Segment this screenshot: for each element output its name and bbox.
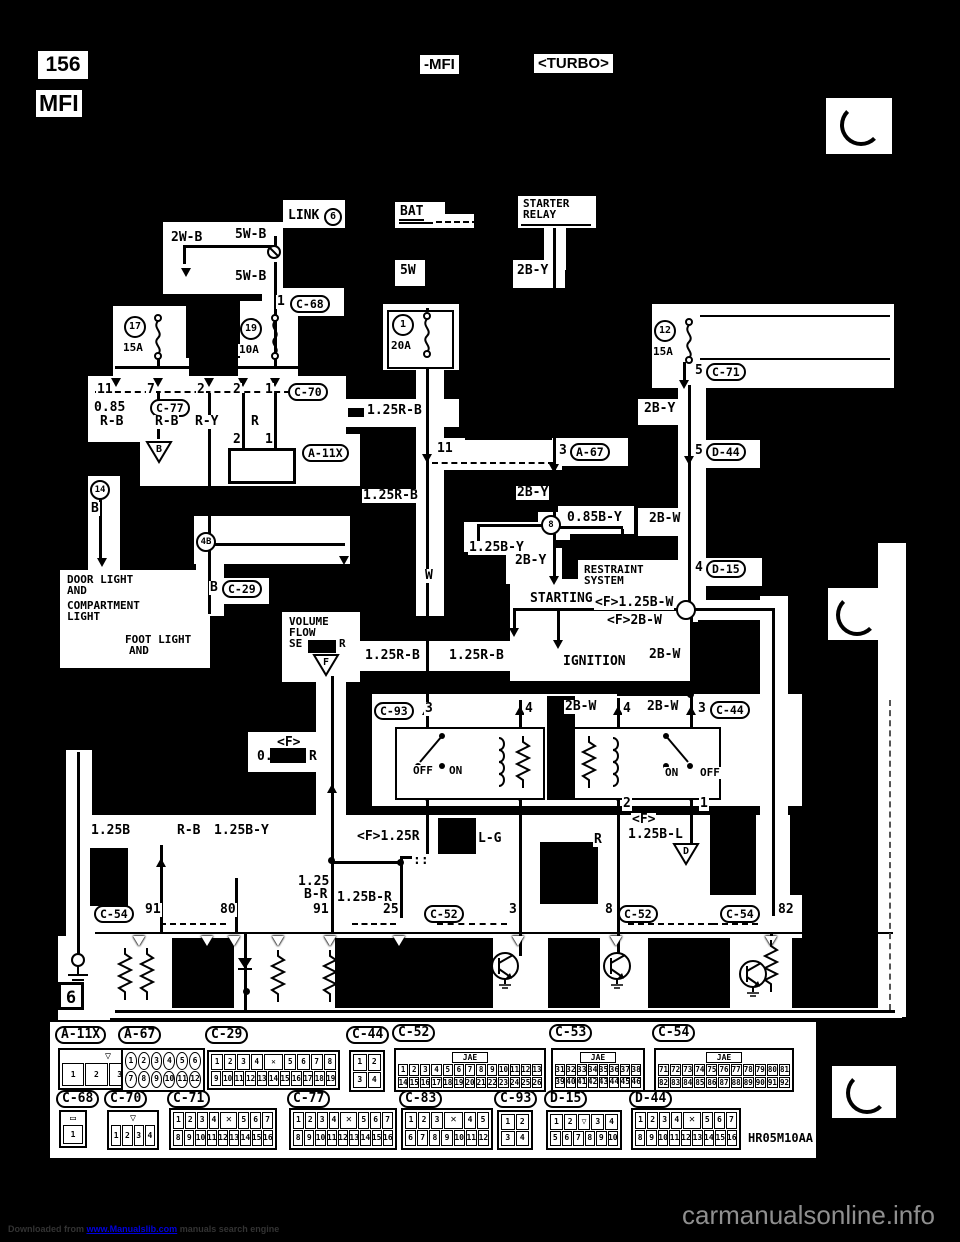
dashed-edge-line — [889, 700, 891, 1010]
connector-block-C-44: 1234 — [349, 1050, 385, 1092]
wire-label: BAT — [399, 205, 424, 221]
wire-label: 1.25R-B — [448, 649, 505, 663]
wire — [115, 1010, 895, 1013]
connector-pin: 11 — [510, 1064, 520, 1076]
connector-pin: 8 — [635, 1130, 645, 1147]
connector-pin: 14 — [268, 1071, 278, 1087]
junction-dot — [397, 859, 404, 866]
grid-reference-marker: 6 — [58, 982, 84, 1010]
connector-pin: 16 — [420, 1077, 430, 1089]
hole-punch-icon — [846, 1072, 888, 1114]
connector-label-C-83: C-83 — [399, 1090, 442, 1108]
connector-pin: 11 — [207, 1130, 217, 1147]
footer-prefix: Downloaded from — [8, 1224, 87, 1234]
connector-block-C-77: 1234✕5678910111213141516 — [289, 1108, 397, 1150]
redaction-block — [540, 842, 598, 904]
circled-number: 6 — [324, 208, 342, 226]
fuse-number: 17 — [124, 316, 146, 338]
wire-label: 5 — [694, 364, 704, 378]
wire — [513, 611, 516, 629]
connector-pin: 75 — [706, 1064, 717, 1076]
wire-label: ON — [448, 765, 463, 777]
connector-pin-row: 123456 — [125, 1052, 201, 1070]
resistor-icon — [323, 950, 337, 1002]
connector-ref: C-44 — [710, 701, 750, 719]
connector-label-C-77: C-77 — [287, 1090, 330, 1108]
connector-pin: 13 — [692, 1130, 702, 1147]
connector-pin: 21 — [476, 1077, 486, 1089]
connector-pin: 3 — [197, 1112, 208, 1129]
connector-pin: 8 — [585, 1131, 596, 1147]
wire-label: 7 — [146, 383, 156, 397]
ecu-pin-arrow-icon — [324, 936, 336, 946]
ecu-pin-arrow-icon — [512, 936, 524, 946]
connector-pin-row: 12 — [353, 1054, 381, 1071]
page-title: MFI — [36, 90, 82, 120]
wire-label: 1.25R-B — [362, 489, 419, 503]
connector-pin: 11 — [176, 1071, 188, 1089]
wire — [426, 798, 429, 858]
wire-label: 11 — [96, 383, 114, 397]
wire-label: 2B-W — [646, 700, 679, 714]
resistor-icon — [516, 736, 530, 788]
connector-ref: C-70 — [288, 383, 328, 401]
connector-label-C-70: C-70 — [104, 1090, 147, 1108]
connector-pin: 78 — [743, 1064, 754, 1076]
connector-pin-row: 5678910 — [550, 1131, 618, 1147]
connector-pin: 3 — [431, 1112, 443, 1129]
dashed-wire — [437, 923, 507, 925]
hole-punch-icon — [836, 594, 878, 636]
connector-pin: 5 — [702, 1112, 713, 1129]
connector-pin-row: 12▽34 — [550, 1114, 618, 1130]
connector-pin: 35 — [599, 1064, 609, 1076]
connector-pin: 22 — [487, 1077, 497, 1089]
footer-link[interactable]: www.Manualslib.com — [87, 1224, 178, 1234]
svg-text:F: F — [323, 657, 329, 668]
connector-pin: 10 — [498, 1064, 508, 1076]
connector-pin: 2 — [185, 1112, 196, 1129]
connector-ref: C-52 — [424, 905, 464, 923]
connector-pin: 86 — [706, 1077, 717, 1089]
ground-symbol-F: F — [312, 653, 340, 677]
connector-block-C-54: JAE7172737475767778798081828384858687888… — [654, 1048, 794, 1092]
wire-label: IGNITION — [562, 655, 627, 669]
connector-pin: 87 — [718, 1077, 729, 1089]
connector-ref: C-93 — [374, 702, 414, 720]
connector-pin: 12 — [478, 1130, 489, 1147]
connector-keyway-icon: ▽ — [105, 1052, 111, 1062]
wire-label: R — [308, 750, 318, 764]
transistor-icon — [599, 950, 635, 990]
wire-label: <F> — [631, 813, 656, 827]
resistor-icon — [140, 948, 154, 1000]
connector-key-cell: ✕ — [444, 1112, 463, 1129]
connector-pin: 34 — [588, 1064, 598, 1076]
junction-circle: 14 — [90, 480, 110, 500]
connector-pin: 12 — [218, 1130, 228, 1147]
ground-symbol-B: B — [145, 440, 173, 464]
arrowhead-down-icon — [617, 551, 627, 560]
wire — [617, 693, 693, 696]
connector-pin: 4 — [163, 1052, 175, 1070]
connector-pin: 8 — [293, 1130, 303, 1147]
wire-label: R-B — [99, 415, 124, 429]
connector-pin: 4 — [209, 1112, 220, 1129]
wire — [553, 228, 556, 290]
connector-label-A-67: A-67 — [118, 1026, 161, 1044]
wire-label: AND — [66, 585, 88, 597]
wire-label: W — [424, 569, 434, 583]
connector-pin-row: 910111213141516171819 — [211, 1071, 336, 1087]
fuse-number: 1 — [392, 314, 414, 336]
connector-pin: 5 — [477, 1112, 489, 1129]
wire-label: 2W-B — [170, 231, 203, 245]
connector-pin: 6 — [297, 1054, 309, 1070]
wire — [334, 861, 398, 864]
connector-pin: 5 — [284, 1054, 296, 1070]
connector-pin: 1 — [501, 1114, 515, 1130]
wire-label: 0.85 — [93, 401, 126, 415]
wire-label: LINK — [287, 209, 320, 223]
wire-label: 2 — [622, 797, 632, 811]
connector-pin: 10 — [454, 1130, 465, 1147]
wire-label: 2B-W — [648, 648, 681, 662]
wire-label: <F>1.25B-W — [594, 596, 674, 610]
connector-label-C-52: C-52 — [392, 1024, 435, 1042]
wire — [183, 248, 186, 264]
wire — [621, 529, 624, 553]
connector-pin: 4 — [431, 1064, 441, 1076]
connector-pin: 1 — [635, 1112, 646, 1129]
fuse-amps: 20A — [390, 340, 412, 352]
header-variant-label: <TURBO> — [534, 54, 613, 73]
connector-pin: 3 — [353, 1072, 367, 1089]
connector-pin: 14 — [398, 1077, 408, 1089]
wire-label: SYSTEM — [583, 575, 625, 587]
connector-pin: 4 — [145, 1125, 155, 1146]
connector-pin: 1 — [550, 1114, 563, 1130]
wire-label: 5 — [694, 444, 704, 458]
wire-label: 1.25R-B — [366, 404, 423, 418]
wire-label: 5W — [399, 264, 417, 278]
component-box-a11x — [228, 448, 296, 484]
connector-pin: 4 — [671, 1112, 682, 1129]
wire — [77, 752, 80, 958]
connector-pin: 37 — [620, 1064, 630, 1076]
connector-pin: 81 — [779, 1064, 790, 1076]
connector-pin: 43 — [599, 1077, 609, 1089]
wire-label: 3 — [558, 444, 568, 458]
connector-keyway-icon: ▽ — [130, 1114, 136, 1124]
wire-label: 1 — [264, 383, 274, 397]
arrowhead-down-icon — [553, 640, 563, 649]
connector-pin: 44 — [609, 1077, 619, 1089]
redaction-block — [186, 296, 240, 358]
arrowhead-down-icon — [549, 576, 559, 585]
connector-ref: C-54 — [720, 905, 760, 923]
connector-label-C-68: C-68 — [56, 1090, 99, 1108]
wire-label: 2B-Y — [643, 402, 676, 416]
fuse-element-icon — [682, 318, 696, 364]
relay-coil-icon — [606, 736, 620, 788]
connector-pin: 16 — [727, 1130, 737, 1147]
connector-pin: 7 — [417, 1130, 428, 1147]
wire-label: 5W-B — [234, 228, 267, 242]
connector-pin: 16 — [383, 1130, 393, 1147]
connector-pin: 45 — [620, 1077, 630, 1089]
wire-label: 1 — [264, 433, 274, 447]
connector-pin: 1 — [293, 1112, 304, 1129]
wire-label: 2 — [232, 433, 242, 447]
wire-label: 0.85B-Y — [566, 511, 623, 525]
connector-pin: 15 — [280, 1071, 290, 1087]
fuse-amps: 10A — [238, 344, 260, 356]
connector-pin: 76 — [718, 1064, 729, 1076]
wire-label: R-B — [176, 824, 201, 838]
connector-pin: 39 — [555, 1077, 565, 1089]
connector-pin: 2 — [224, 1054, 236, 1070]
wire — [700, 315, 890, 317]
wire-label: 2B-Y — [514, 554, 547, 568]
fuse-element-icon — [151, 314, 165, 360]
connector-pin-row: 7172737475767778798081 — [658, 1064, 790, 1076]
footer-suffix: manuals search engine — [177, 1224, 279, 1234]
wire — [348, 408, 364, 417]
wire-label: 8 — [604, 903, 614, 917]
wire-label: 2B-Y — [516, 486, 549, 500]
connector-pin: 8 — [429, 1130, 440, 1147]
connector-label-D-44: D-44 — [629, 1090, 672, 1108]
wire-label: 1.25R-B — [364, 649, 421, 663]
connector-pin-row: 1234 — [111, 1125, 155, 1146]
wire-label: B-R — [303, 888, 328, 902]
dashed-wire — [712, 923, 758, 925]
connector-block-D-15: 12▽345678910 — [546, 1110, 622, 1150]
connector-block-C-93: 1234 — [497, 1110, 533, 1150]
connector-brand: JAE — [452, 1052, 488, 1063]
connector-block-A-67: 123456789101112 — [121, 1048, 205, 1092]
resistor-icon — [118, 948, 132, 1000]
connector-ref: D-44 — [706, 443, 746, 461]
connector-pin: 6 — [405, 1130, 416, 1147]
wire-label: 1.25B-Y — [213, 824, 270, 838]
wire-label: R — [593, 833, 603, 847]
connector-pin-row: 12345678910111213 — [398, 1064, 542, 1076]
connector-pin: 1 — [211, 1054, 223, 1070]
relay-coil-icon — [492, 736, 506, 788]
connector-pin-row: 123✕45 — [405, 1112, 489, 1129]
connector-pin-row: 1234✕567 — [635, 1112, 737, 1129]
fuse-number: 12 — [654, 320, 676, 342]
fuse-amps: 15A — [652, 346, 674, 358]
connector-pin: 18 — [443, 1077, 453, 1089]
connector-pin: 4 — [251, 1054, 263, 1070]
redaction-block — [270, 748, 306, 763]
connector-pin: 1 — [405, 1112, 417, 1129]
fuse-number: 19 — [240, 318, 262, 340]
connector-pin: 85 — [694, 1077, 705, 1089]
wire — [521, 224, 591, 226]
connector-pin: 19 — [326, 1071, 336, 1087]
connector-pin: 83 — [670, 1077, 681, 1089]
wire — [274, 393, 277, 450]
connector-pin: 3 — [134, 1125, 144, 1146]
connector-pin: 4 — [329, 1112, 340, 1129]
connector-pin: 5 — [176, 1052, 188, 1070]
wire-label: 3 — [508, 903, 518, 917]
wiring-diagram-page: 156 -MFI <TURBO> MFI LINK62W-B5W-B5W-B1C… — [0, 0, 960, 1242]
connector-key-cell: ✕ — [264, 1054, 283, 1070]
arrowhead-down-icon — [181, 268, 191, 277]
wire-label: 80 — [219, 903, 237, 917]
connector-pin: 42 — [588, 1077, 598, 1089]
dashed-wire — [160, 923, 226, 925]
wire-label: ON — [664, 767, 679, 779]
arrowhead-down-icon — [473, 562, 483, 571]
connector-pin: 4 — [368, 1072, 382, 1089]
connector-pin: 5 — [358, 1112, 369, 1129]
connector-pin: 13 — [532, 1064, 542, 1076]
connector-pin: 9 — [184, 1130, 194, 1147]
connector-label-C-93: C-93 — [494, 1090, 537, 1108]
wire — [553, 534, 556, 578]
connector-pin: 7 — [726, 1112, 737, 1129]
connector-pin-row: 1234✕567 — [293, 1112, 393, 1129]
redaction-block — [648, 938, 730, 1008]
connector-pin: 80 — [767, 1064, 778, 1076]
wire — [115, 366, 299, 369]
connector-pin: 2 — [647, 1112, 658, 1129]
connector-label-C-44: C-44 — [346, 1026, 389, 1044]
connector-pin-row: 8910111213141516 — [293, 1130, 393, 1147]
connector-label-A-11X: A-11X — [55, 1026, 106, 1044]
wire-label: 3 — [424, 702, 434, 716]
connector-pin: 2 — [368, 1054, 382, 1071]
connector-pin: 3 — [317, 1112, 328, 1129]
ecu-pin-arrow-icon — [228, 936, 240, 946]
connector-pin: 4 — [516, 1131, 530, 1147]
connector-label-C-71: C-71 — [167, 1090, 210, 1108]
wire — [559, 526, 623, 529]
connector-pin: 10 — [222, 1071, 232, 1087]
resistor-icon — [582, 736, 596, 788]
junction-circle: 8 — [541, 515, 561, 535]
connector-pin: 6 — [189, 1052, 201, 1070]
redaction-block — [792, 938, 878, 1008]
connector-ref: A-67 — [570, 443, 610, 461]
wire-label: 82 — [777, 903, 795, 917]
wire-label: 1 — [276, 295, 286, 309]
connector-pin: 25 — [521, 1077, 531, 1089]
connector-pin: 23 — [498, 1077, 508, 1089]
connector-pin: 8 — [173, 1130, 183, 1147]
wire-label: 3 — [697, 702, 707, 716]
connector-pin: 71 — [658, 1064, 669, 1076]
connector-pin: 2 — [85, 1063, 107, 1086]
connector-pin: 74 — [694, 1064, 705, 1076]
connector-pin: 13 — [229, 1130, 239, 1147]
wire — [694, 608, 774, 611]
wire — [242, 393, 245, 450]
connector-pin: 2 — [138, 1052, 150, 1070]
connector-pin: 14 — [360, 1130, 370, 1147]
connector-pin: 1 — [398, 1064, 408, 1076]
connector-pin: 8 — [324, 1054, 336, 1070]
arrowhead-down-icon — [679, 380, 689, 389]
arrowhead-down-icon — [684, 456, 694, 465]
wire-label: <F>2B-W — [606, 614, 663, 628]
connector-pin: 82 — [658, 1077, 669, 1089]
wire — [95, 932, 893, 934]
connector-ref: C-71 — [706, 363, 746, 381]
header-continue-label: -MFI — [420, 55, 459, 74]
connector-key-cell: ✕ — [340, 1112, 357, 1129]
connector-pin-row: 8910111213141516 — [635, 1130, 737, 1147]
wire-label: 1 — [699, 797, 709, 811]
wire-label: 1.25B — [90, 824, 131, 838]
connector-pin: 12 — [189, 1071, 201, 1089]
connector-pin: 73 — [682, 1064, 693, 1076]
connector-pin-row: 3940414243444546 — [555, 1077, 641, 1089]
connector-pin: 10 — [163, 1071, 175, 1089]
arrowhead-down-icon — [549, 464, 559, 473]
wire-label: STARTING — [529, 592, 594, 606]
connector-pin: 36 — [609, 1064, 619, 1076]
ecu-pin-arrow-icon — [272, 936, 284, 946]
wire-label: 11 — [436, 442, 454, 456]
connector-label-C-53: C-53 — [549, 1024, 592, 1042]
wire — [183, 245, 276, 248]
ground-symbol-D: D — [672, 842, 700, 866]
connector-pin: 9 — [441, 1130, 452, 1147]
ecu-pin-arrow-icon — [133, 936, 145, 946]
svg-text:D: D — [683, 846, 689, 857]
connector-block-C-68: ▭1 — [59, 1110, 87, 1148]
connector-pin: 1 — [125, 1052, 137, 1070]
wire — [690, 798, 693, 846]
connector-pin: 2 — [305, 1112, 316, 1129]
connector-pin: 2 — [564, 1114, 577, 1130]
redaction-block — [90, 848, 128, 906]
connector-pin: 1 — [111, 1125, 121, 1146]
connector-pin: 17 — [431, 1077, 441, 1089]
connector-pin: 38 — [631, 1064, 641, 1076]
wire-label: 2B-W — [564, 700, 597, 714]
redaction-block — [172, 938, 234, 1008]
connector-pin: 7 — [262, 1112, 273, 1129]
connector-pin: 77 — [731, 1064, 742, 1076]
junction-dot — [328, 857, 335, 864]
dashed-wire — [432, 462, 554, 464]
wire-label: OFF — [699, 767, 721, 779]
redaction-block — [548, 938, 600, 1008]
connector-pin: 15 — [252, 1130, 262, 1147]
wire-label: LIGHT — [66, 611, 101, 623]
connector-pin: 32 — [566, 1064, 576, 1076]
connector-pin: 1 — [63, 1125, 83, 1144]
connector-pin: 10 — [315, 1130, 325, 1147]
connector-pin: ▽ — [578, 1114, 591, 1130]
connector-block-C-53: JAE31323334353637383940414243444546 — [551, 1048, 645, 1092]
transistor-icon — [487, 950, 523, 990]
connector-pin: 92 — [779, 1077, 790, 1089]
connector-ref: D-15 — [706, 560, 746, 578]
connector-pin: 10 — [608, 1131, 619, 1147]
connector-key-cell: ✕ — [683, 1112, 700, 1129]
wire-label: 2B-W — [648, 512, 681, 526]
redaction-block — [710, 815, 756, 895]
